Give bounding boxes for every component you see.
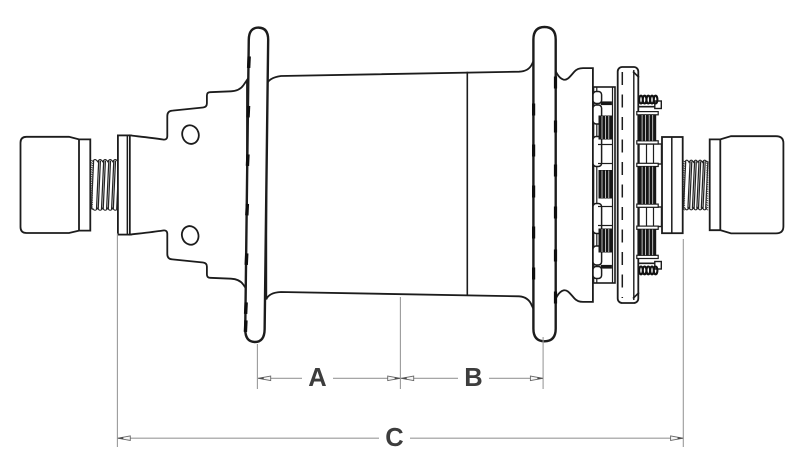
svg-text:A: A <box>308 364 326 392</box>
svg-text:C: C <box>385 424 403 452</box>
svg-text:B: B <box>464 364 482 392</box>
